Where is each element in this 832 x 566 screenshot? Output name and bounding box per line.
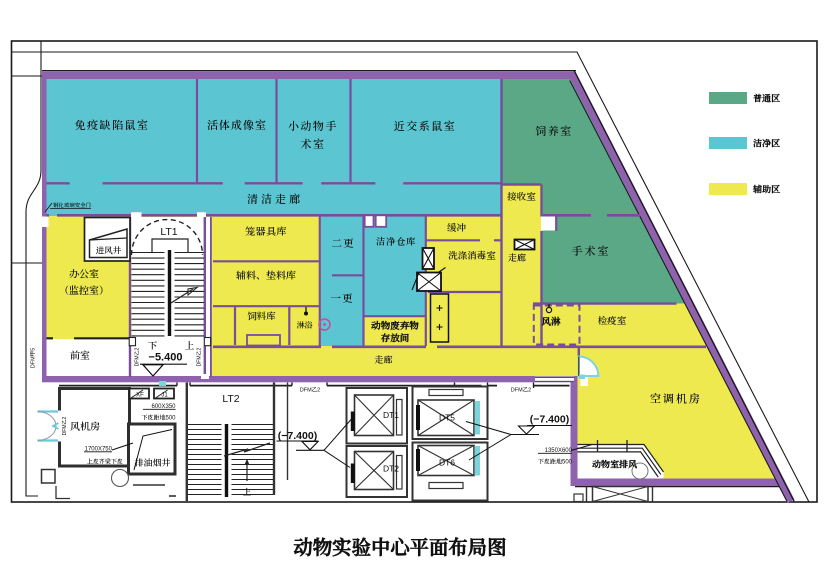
svg-text:一更: 一更 (331, 291, 354, 306)
svg-text:存放间: 存放间 (381, 331, 410, 345)
svg-text:走廊: 走廊 (374, 353, 392, 366)
svg-text:DFM甲5: DFM甲5 (29, 348, 37, 368)
svg-text:风淋: 风淋 (541, 314, 561, 328)
svg-text:(−7.400): (−7.400) (278, 430, 317, 442)
svg-text:上皮齐梁下皮: 上皮齐梁下皮 (86, 457, 124, 466)
svg-text:DFM乙2: DFM乙2 (300, 386, 320, 394)
svg-text:DFM乙2: DFM乙2 (61, 416, 68, 435)
svg-text:活体成像室: 活体成像室 (207, 117, 267, 133)
svg-text:免疫缺陷鼠室: 免疫缺陷鼠室 (75, 117, 150, 133)
svg-text:近交系鼠室: 近交系鼠室 (394, 118, 457, 134)
svg-text:DT1: DT1 (383, 410, 399, 420)
svg-text:清洁走廊: 清洁走廊 (246, 191, 303, 207)
svg-text:DFM乙2: DFM乙2 (511, 386, 531, 394)
svg-text:淋浴: 淋浴 (297, 320, 314, 331)
svg-text:下皮距地500: 下皮距地500 (140, 413, 176, 422)
svg-text:（监控室）: （监控室） (59, 282, 109, 297)
svg-text:上: 上 (243, 486, 252, 498)
svg-text:洁净区: 洁净区 (753, 137, 780, 150)
svg-text:风机房: 风机房 (70, 418, 100, 433)
svg-text:DFM乙2: DFM乙2 (134, 347, 141, 366)
svg-text:洁净仓库: 洁净仓库 (376, 234, 416, 248)
svg-text:辅料、垫料库: 辅料、垫料库 (236, 267, 296, 282)
svg-text:下皮距地500: 下皮距地500 (537, 457, 573, 466)
svg-text:走廊: 走廊 (508, 251, 526, 264)
svg-text:二更: 二更 (332, 236, 355, 251)
svg-text:LT1: LT1 (160, 226, 177, 238)
svg-text:钢化玻璃安全门: 钢化玻璃安全门 (53, 201, 92, 209)
svg-text:(−7.400): (−7.400) (530, 414, 569, 426)
svg-text:饲养室: 饲养室 (535, 123, 573, 139)
svg-text:DT6: DT6 (439, 458, 455, 468)
svg-text:小动物手: 小动物手 (288, 118, 338, 134)
svg-text:术室: 术室 (301, 136, 326, 152)
svg-text:下: 下 (148, 338, 158, 352)
svg-text:J1: J1 (161, 393, 168, 399)
svg-text:进风井: 进风井 (95, 245, 122, 257)
svg-text:排油烟井: 排油烟井 (133, 456, 171, 469)
svg-text:动物实验中心平面布局图: 动物实验中心平面布局图 (294, 532, 507, 561)
svg-text:空调机房: 空调机房 (650, 391, 702, 407)
svg-text:笼器具库: 笼器具库 (244, 223, 287, 238)
svg-text:饲料库: 饲料库 (247, 309, 276, 323)
svg-text:DFM乙2: DFM乙2 (196, 347, 203, 366)
svg-text:上: 上 (185, 338, 195, 352)
svg-text:接收室: 接收室 (506, 189, 536, 203)
svg-text:XF: XF (136, 393, 144, 399)
svg-text:缓冲: 缓冲 (447, 220, 467, 234)
svg-text:−5.400: −5.400 (149, 352, 183, 364)
svg-text:DT2: DT2 (383, 464, 399, 474)
svg-text:前室: 前室 (70, 347, 90, 362)
svg-text:洗涤消毒室: 洗涤消毒室 (448, 248, 496, 262)
svg-text:DT5: DT5 (439, 413, 455, 423)
svg-text:LT2: LT2 (222, 393, 239, 405)
svg-text:动物室排风: 动物室排风 (591, 458, 638, 471)
svg-text:辅助区: 辅助区 (752, 183, 780, 196)
svg-text:办公室: 办公室 (69, 266, 99, 281)
svg-text:手术室: 手术室 (572, 243, 611, 259)
svg-text:检疫室: 检疫室 (598, 313, 627, 327)
svg-text:普通区: 普通区 (753, 92, 780, 105)
